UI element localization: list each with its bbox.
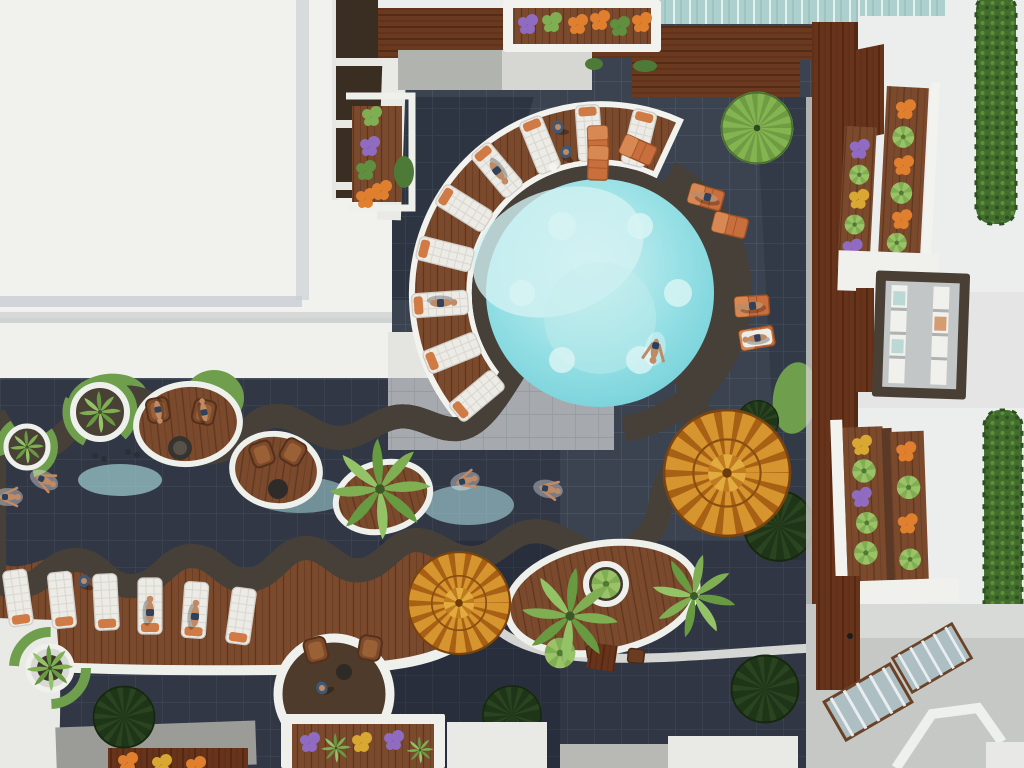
boardwalk-curb	[806, 97, 813, 657]
roof-drip-line	[0, 312, 392, 318]
grass-tuft	[585, 58, 603, 70]
picture-window	[872, 270, 970, 399]
top-planter-box	[503, 0, 661, 52]
roof-edge-line	[296, 0, 309, 300]
hedge-wall-top	[976, 0, 1016, 224]
bottom-planter-box	[281, 714, 445, 768]
door-handle	[847, 633, 853, 639]
balcony-slab	[849, 578, 960, 606]
parasol-west	[408, 552, 510, 654]
render-viewport: Resort courtyard with freeform lazy-rive…	[0, 0, 1024, 768]
terrace-strip-bright	[502, 50, 592, 90]
low-wall	[560, 744, 670, 768]
grass-tuft	[633, 60, 657, 72]
river-highlight	[78, 464, 162, 496]
bottom-right-terrace	[806, 576, 1024, 768]
deck-table	[268, 479, 288, 499]
parasol-east	[664, 410, 790, 536]
pool-ball	[549, 163, 557, 171]
timber-wall	[856, 288, 874, 392]
walkway-shade-line	[0, 318, 392, 323]
roof-eave-band	[0, 296, 302, 307]
walkway-below-roof	[0, 318, 392, 378]
timber-door	[816, 576, 860, 690]
low-wall	[447, 722, 547, 768]
aerial-pool-render: Resort courtyard with freeform lazy-rive…	[0, 0, 1024, 768]
glass-strip	[860, 0, 946, 16]
low-wall	[668, 736, 798, 768]
window-mullion	[336, 58, 384, 66]
river-highlight	[422, 485, 514, 525]
terrace-corner	[986, 742, 1024, 768]
